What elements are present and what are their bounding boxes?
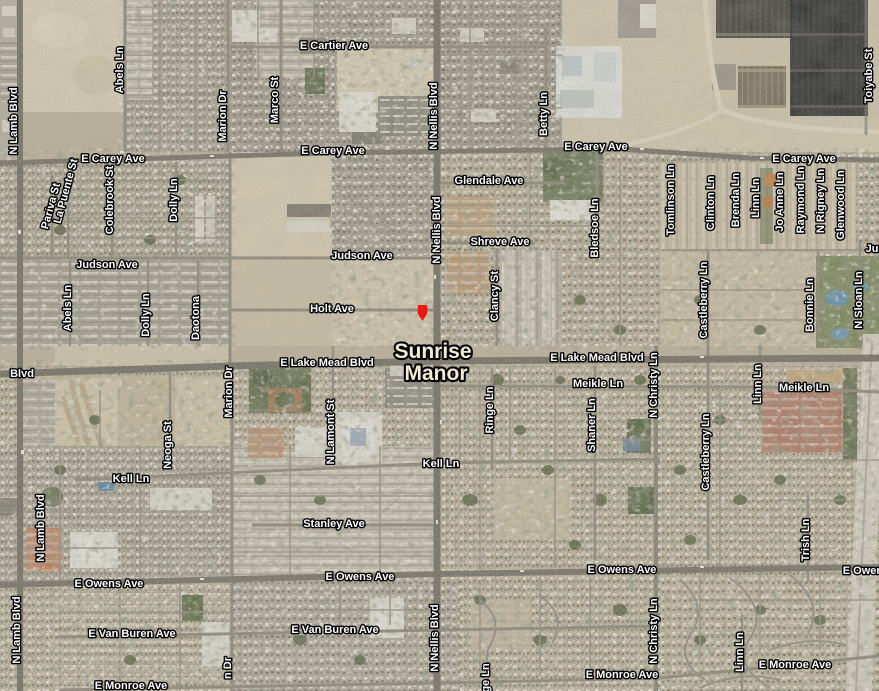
- svg-text:N Lamb Blvd: N Lamb Blvd: [35, 494, 47, 561]
- svg-text:ge Ln: ge Ln: [480, 663, 492, 691]
- svg-text:E Owens: E Owens: [843, 565, 879, 577]
- svg-text:Ringe Ln: Ringe Ln: [484, 386, 496, 433]
- svg-text:Tomlinson Ln: Tomlinson Ln: [665, 164, 677, 236]
- svg-text:Marco St: Marco St: [269, 76, 281, 123]
- svg-text:Betty Ln: Betty Ln: [538, 92, 550, 136]
- svg-text:N Sloan Ln: N Sloan Ln: [853, 271, 865, 329]
- svg-text:Linn Ln: Linn Ln: [752, 364, 764, 404]
- svg-text:E Owens Ave: E Owens Ave: [75, 578, 144, 590]
- svg-text:E Carey Ave: E Carey Ave: [81, 153, 144, 165]
- svg-text:Clinton Ln: Clinton Ln: [705, 176, 717, 231]
- svg-text:Abels Ln: Abels Ln: [114, 46, 126, 93]
- svg-text:Bledsoe Ln: Bledsoe Ln: [589, 198, 601, 258]
- svg-text:Colebrook St: Colebrook St: [104, 165, 116, 234]
- svg-text:Bonnie Ln: Bonnie Ln: [804, 278, 816, 332]
- svg-text:Judson Ave: Judson Ave: [76, 259, 138, 271]
- svg-text:Shreve Ave: Shreve Ave: [470, 236, 529, 248]
- svg-text:Abels Ln: Abels Ln: [62, 284, 74, 331]
- svg-text:Linn Ln: Linn Ln: [734, 632, 746, 672]
- svg-text:Daotona: Daotona: [190, 295, 202, 340]
- svg-text:Glendale Ave: Glendale Ave: [455, 175, 524, 187]
- svg-text:Manor: Manor: [405, 362, 468, 385]
- svg-text:Jo Anne Ln: Jo Anne Ln: [774, 172, 786, 232]
- svg-text:Judson Ave: Judson Ave: [331, 250, 393, 262]
- svg-text:Castleberry Ln: Castleberry Ln: [700, 413, 712, 490]
- svg-text:Castleberry Ln: Castleberry Ln: [698, 261, 710, 338]
- svg-text:E Owens Ave: E Owens Ave: [326, 571, 395, 583]
- svg-text:Meikle Ln: Meikle Ln: [573, 378, 623, 390]
- svg-text:N Nellis Blvd: N Nellis Blvd: [428, 82, 440, 149]
- svg-text:N Rigney Ln: N Rigney Ln: [815, 169, 827, 233]
- svg-text:Glenwood Ln: Glenwood Ln: [835, 170, 847, 240]
- svg-text:E Monroe Ave: E Monroe Ave: [759, 659, 832, 671]
- svg-text:Brenda Ln: Brenda Ln: [730, 173, 742, 228]
- svg-text:Trish Ln: Trish Ln: [800, 518, 812, 561]
- svg-text:Shaner Ln: Shaner Ln: [586, 398, 598, 452]
- svg-text:Toiyabe St: Toiyabe St: [863, 48, 875, 103]
- svg-text:Holt Ave: Holt Ave: [310, 303, 354, 315]
- svg-text:Marion Dr: Marion Dr: [223, 366, 235, 418]
- svg-text:E Monroe Ave: E Monroe Ave: [95, 680, 168, 691]
- svg-text:N Christy Ln: N Christy Ln: [648, 352, 660, 418]
- svg-text:Kell Ln: Kell Ln: [113, 473, 150, 485]
- svg-text:E Lake Mead Blvd: E Lake Mead Blvd: [280, 357, 374, 369]
- svg-text:N Nellis Blvd: N Nellis Blvd: [429, 604, 441, 671]
- svg-text:N Lamb Blvd: N Lamb Blvd: [8, 87, 20, 154]
- svg-text:Neoga St: Neoga St: [162, 421, 174, 469]
- svg-text:N Lamont St: N Lamont St: [325, 399, 337, 464]
- svg-text:N Lamb Blvd: N Lamb Blvd: [11, 596, 23, 663]
- svg-text:Meikle Ln: Meikle Ln: [779, 382, 829, 394]
- svg-text:Dolly Ln: Dolly Ln: [140, 293, 152, 337]
- svg-text:Linn Ln: Linn Ln: [750, 178, 762, 218]
- svg-text:N Nellis Blvd: N Nellis Blvd: [431, 196, 443, 263]
- svg-text:Raymond Ln: Raymond Ln: [795, 166, 807, 233]
- svg-text:Blvd: Blvd: [10, 368, 34, 380]
- svg-text:Kell Ln: Kell Ln: [423, 458, 460, 470]
- svg-text:E Carey Ave: E Carey Ave: [772, 153, 835, 165]
- svg-text:Marion Dr: Marion Dr: [217, 90, 229, 142]
- svg-text:Dolly Ln: Dolly Ln: [168, 178, 180, 222]
- svg-text:E Lake Mead Blvd: E Lake Mead Blvd: [550, 352, 644, 364]
- svg-text:N Christy Ln: N Christy Ln: [648, 598, 660, 664]
- svg-text:E Carey Ave: E Carey Ave: [301, 145, 364, 157]
- svg-text:Clancy St: Clancy St: [489, 271, 501, 321]
- svg-text:Ju: Ju: [866, 243, 879, 255]
- svg-text:Sunrise: Sunrise: [394, 340, 471, 363]
- svg-text:E Van Buren Ave: E Van Buren Ave: [88, 628, 175, 640]
- svg-text:n Dr: n Dr: [222, 656, 234, 679]
- svg-text:E Monroe Ave: E Monroe Ave: [586, 669, 659, 681]
- svg-text:E Carey Ave: E Carey Ave: [564, 141, 627, 153]
- svg-text:Stanley Ave: Stanley Ave: [303, 518, 365, 530]
- svg-text:E Owens Ave: E Owens Ave: [588, 564, 657, 576]
- svg-text:E Cartier Ave: E Cartier Ave: [300, 40, 368, 52]
- svg-text:E Van Buren Ave: E Van Buren Ave: [291, 624, 378, 636]
